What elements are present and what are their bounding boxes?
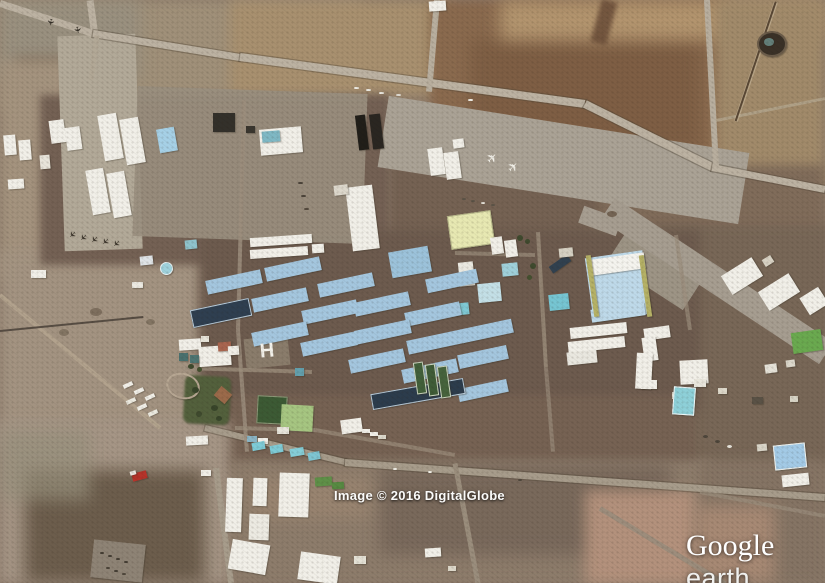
- car: [396, 94, 401, 97]
- car: [715, 440, 720, 443]
- tree: [530, 263, 536, 269]
- building-cyan: [672, 386, 696, 415]
- scrub: [59, 329, 69, 336]
- building: [757, 443, 768, 451]
- truck: [370, 432, 378, 436]
- building: [8, 178, 25, 189]
- car: [298, 182, 303, 185]
- tree: [192, 387, 199, 393]
- tree: [197, 367, 202, 372]
- building-green-roof: [314, 476, 332, 486]
- car: [703, 435, 708, 438]
- building: [694, 379, 706, 387]
- scrub: [90, 308, 102, 316]
- truck: [428, 0, 446, 11]
- car: [379, 92, 384, 95]
- warehouse-long: [297, 551, 341, 583]
- building-dark: [752, 397, 763, 404]
- tree: [525, 239, 530, 244]
- tree: [517, 235, 523, 241]
- building-blue: [156, 127, 178, 154]
- building-dark: [246, 126, 255, 133]
- satellite-map-viewport[interactable]: ✈✈✈✈✈✈✈✈✈H Image © 2016 DigitalGlobe Goo…: [0, 0, 825, 583]
- building: [31, 270, 46, 278]
- car: [393, 468, 397, 470]
- building: [333, 184, 348, 196]
- sand-pink-1: [585, 490, 695, 583]
- car: [491, 204, 495, 206]
- car: [471, 200, 475, 202]
- airplane-icon: ✈: [72, 26, 82, 35]
- building-teal-dark: [190, 355, 199, 363]
- scrub: [146, 319, 155, 325]
- tree: [188, 364, 194, 369]
- building: [186, 435, 208, 445]
- earth-product-text: earth: [686, 563, 750, 583]
- building: [201, 470, 211, 476]
- building: [132, 282, 143, 288]
- tree: [211, 405, 218, 411]
- building: [790, 396, 798, 402]
- car: [366, 89, 371, 92]
- hangar-blue-se: [773, 442, 807, 470]
- airplane-icon: ✈: [45, 18, 55, 27]
- building: [559, 247, 574, 257]
- hangar-west: [64, 126, 82, 151]
- car: [301, 195, 306, 198]
- building: [452, 138, 464, 148]
- hangar-west: [18, 140, 32, 161]
- google-logo-text: Google: [686, 529, 774, 562]
- building-dark: [213, 113, 235, 132]
- helipad-marking: H: [259, 340, 275, 361]
- car: [518, 479, 522, 481]
- building: [253, 478, 268, 506]
- imagery-attribution: Image © 2016 DigitalGlobe: [334, 488, 505, 503]
- pond-water: [764, 38, 774, 46]
- building: [425, 547, 442, 557]
- building: [443, 151, 462, 180]
- hangar-west: [3, 135, 17, 156]
- car: [354, 87, 359, 90]
- building: [490, 236, 504, 255]
- warehouse-long: [228, 539, 271, 575]
- building-cyan: [501, 262, 518, 277]
- building: [764, 363, 777, 374]
- tree: [527, 275, 532, 280]
- car: [727, 445, 732, 448]
- building: [227, 345, 239, 355]
- building-teal-dark: [179, 353, 188, 361]
- building: [139, 255, 153, 265]
- building-cyan: [548, 293, 570, 311]
- building-teal: [262, 130, 281, 143]
- building: [249, 514, 270, 541]
- building: [312, 243, 325, 253]
- car: [428, 471, 432, 473]
- building-blue: [247, 436, 257, 442]
- sage-patch: [0, 430, 90, 500]
- building-teal: [295, 368, 304, 376]
- warehouse-long: [225, 478, 243, 533]
- building: [448, 566, 456, 571]
- building: [427, 147, 446, 176]
- parking-lot-south: [90, 539, 146, 582]
- car: [304, 208, 309, 211]
- building: [785, 359, 795, 367]
- tennis-court: [447, 210, 495, 250]
- building: [354, 556, 366, 564]
- tree: [196, 411, 202, 417]
- building: [504, 239, 518, 258]
- water-tank: [160, 262, 173, 275]
- building: [718, 388, 727, 394]
- building: [277, 427, 289, 434]
- tree: [216, 416, 222, 421]
- building-green-roof: [791, 329, 824, 354]
- truck: [378, 435, 386, 439]
- car: [481, 202, 485, 204]
- hangar-west: [48, 119, 66, 144]
- building: [566, 349, 597, 365]
- building: [340, 418, 363, 435]
- car: [468, 99, 473, 102]
- car: [462, 198, 466, 200]
- building: [39, 155, 50, 170]
- google-earth-logo: Google earth: [686, 529, 825, 583]
- building: [201, 336, 209, 342]
- building-teal: [185, 239, 198, 249]
- building: [641, 380, 657, 389]
- truck: [362, 429, 370, 433]
- scrub: [607, 211, 617, 217]
- hangar-area-pavement: [132, 86, 367, 244]
- building-blue: [477, 281, 502, 302]
- warehouse-long: [278, 472, 310, 517]
